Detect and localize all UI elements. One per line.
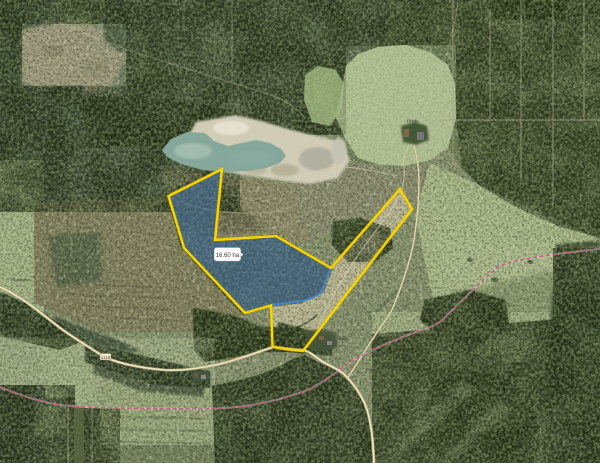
svg-text:Priidu: Priidu <box>407 119 419 124</box>
svg-text:Mõisa: Mõisa <box>337 336 348 341</box>
svg-text:Tagametsa: Tagametsa <box>11 277 31 282</box>
svg-text:Priidu: Priidu <box>366 367 376 372</box>
svg-text:16.60 ha: 16.60 ha <box>216 253 240 259</box>
svg-text:1118: 1118 <box>101 355 111 360</box>
